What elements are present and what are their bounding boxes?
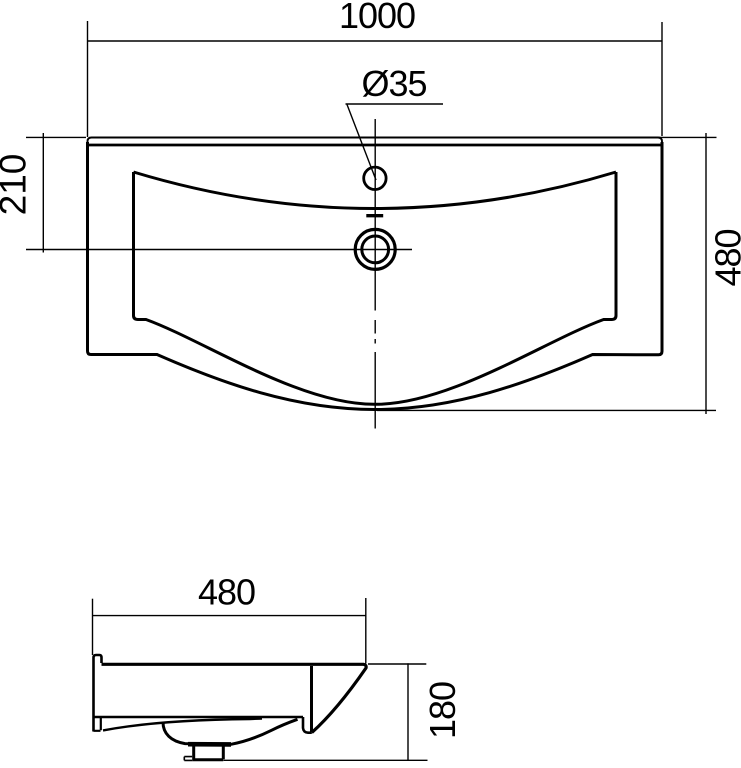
- svg-text:1000: 1000: [339, 0, 415, 36]
- svg-text:180: 180: [422, 682, 463, 739]
- svg-text:480: 480: [198, 572, 255, 613]
- svg-text:Ø35: Ø35: [361, 63, 426, 104]
- svg-text:210: 210: [0, 154, 34, 216]
- svg-text:480: 480: [708, 229, 741, 286]
